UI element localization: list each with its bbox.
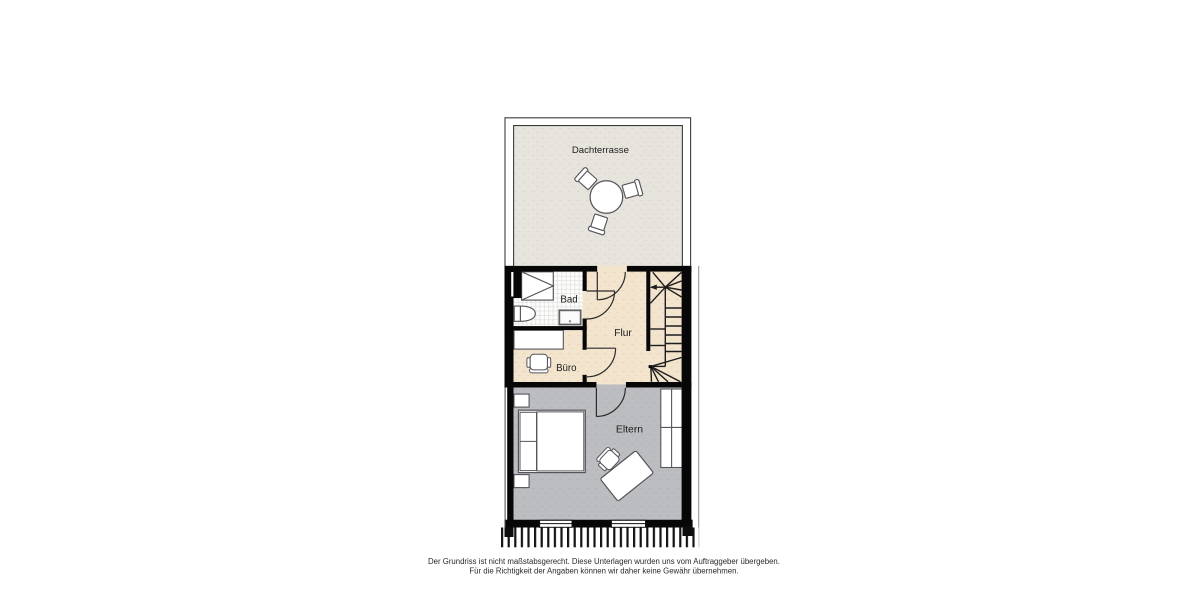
svg-text:Der Grundriss ist nicht maßsta: Der Grundriss ist nicht maßstabsgerecht.… [428, 557, 780, 566]
svg-text:Dachterrasse: Dachterrasse [572, 145, 629, 156]
svg-text:Eltern: Eltern [616, 425, 643, 436]
svg-text:Bad: Bad [560, 295, 577, 306]
svg-text:Büro: Büro [556, 363, 576, 374]
svg-text:Flur: Flur [614, 328, 632, 339]
svg-text:Für die Richtigkeit der Angabe: Für die Richtigkeit der Angaben können w… [469, 566, 738, 575]
